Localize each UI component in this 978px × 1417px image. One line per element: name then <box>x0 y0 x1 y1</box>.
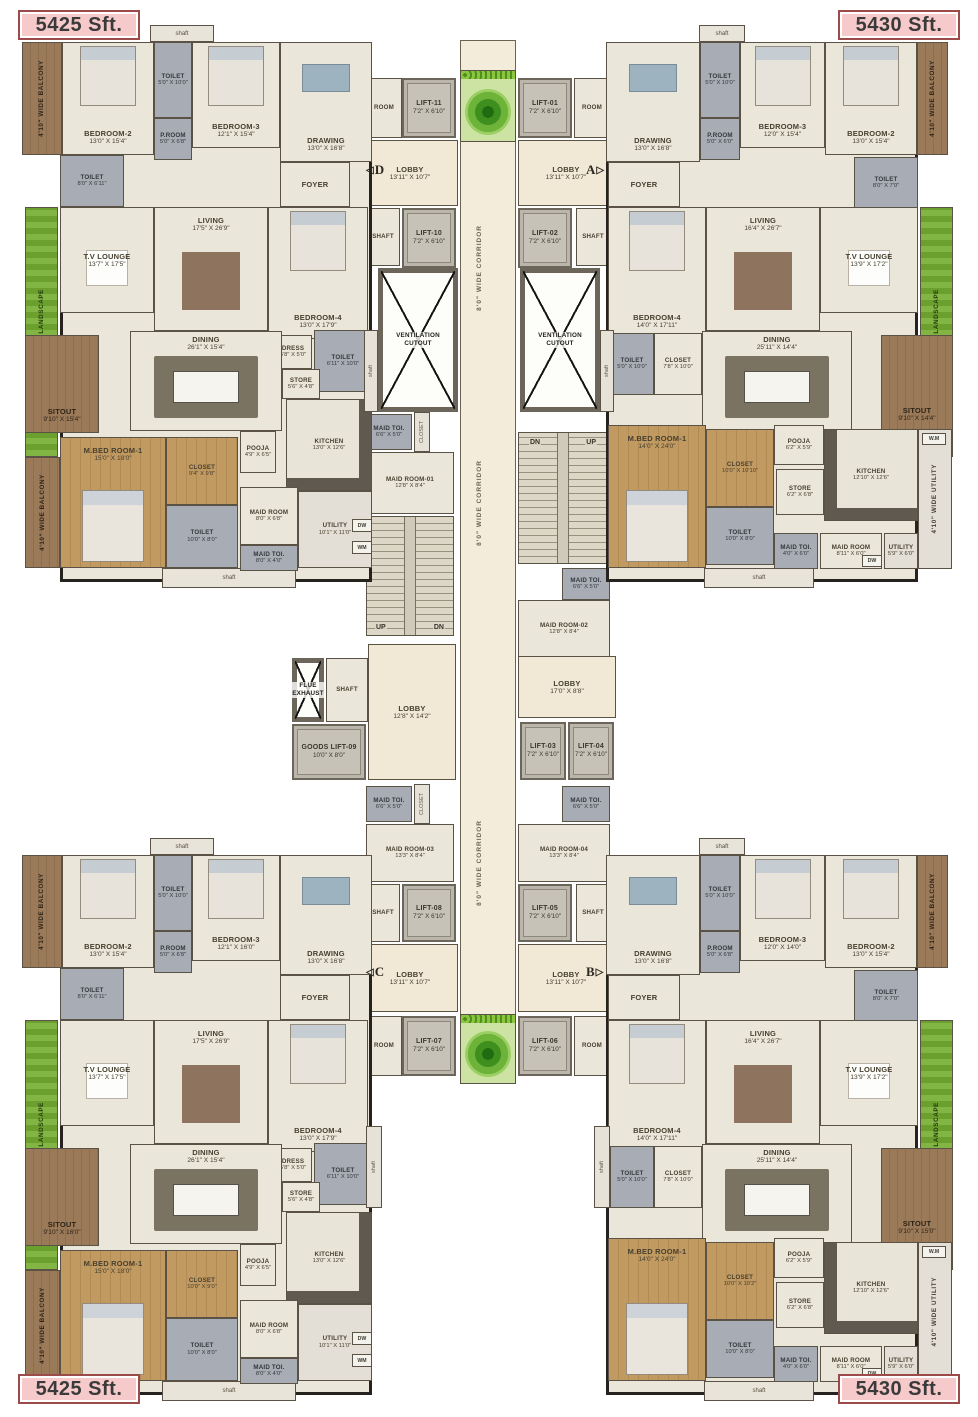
room-name: KITCHEN <box>315 438 344 445</box>
room-dim: 8'0" X 7'0" <box>873 183 899 190</box>
room-maid-toilet: MAID TOI.4'0" X 6'0" <box>774 533 818 569</box>
room-maid-toilet: MAID TOI.4'0" X 6'0" <box>774 1346 818 1382</box>
room-dim: 13'0" X 15'4" <box>89 138 126 146</box>
shaft-bottom: shaft <box>704 1381 814 1401</box>
lift-name: LIFT-02 <box>532 230 558 238</box>
shaft-label: shaft <box>604 365 610 377</box>
room-dim: 6'2" X 5'9" <box>786 445 812 452</box>
lift-06: LIFT-067'2" X 6'10" <box>518 1016 572 1076</box>
room-pooja: POOJA4'9" X 6'5" <box>240 1244 276 1286</box>
room-dim: 8'0" X 6'8" <box>256 516 282 523</box>
room-dim: 13'0" X 15'4" <box>89 951 126 959</box>
room-dim: 8'0" X 6'11" <box>77 181 106 188</box>
room-dim: 9'10" X 14'4" <box>898 415 935 423</box>
room-kitchen: KITCHEN13'0" X 12'6" <box>286 1212 372 1304</box>
room-name: SHAFT <box>582 909 604 916</box>
room-dim: 9'4" X 9'8" <box>189 471 215 478</box>
lift-dim: 7'2" X 6'10" <box>413 108 445 116</box>
room-store: STORE6'2" X 6'8" <box>776 469 824 515</box>
room-name: 4'10" WIDE BALCONY <box>929 60 937 137</box>
room-name: BEDROOM-2 <box>847 942 895 951</box>
room-dim: 4'0" X 6'0" <box>783 551 809 558</box>
shaft-label: shaft <box>715 844 728 850</box>
room-dim: 12'1" X 16'0" <box>217 944 254 952</box>
room-dim: 8'0" X 4'0" <box>256 558 282 565</box>
marker-letter: C <box>375 964 384 980</box>
corridor-label: 8'0" WIDE CORRIDOR <box>476 820 483 906</box>
room-master-bedroom: M.BED ROOM-114'0" X 24'0" <box>608 425 706 568</box>
room-bedroom4: BEDROOM-413'0" X 17'9" <box>268 207 368 339</box>
room-name: MAID TOI. <box>780 1357 811 1364</box>
room-name: TOILET <box>331 1167 354 1174</box>
room-proom: P.ROOM5'0" X 6'8" <box>700 931 740 973</box>
room-lift-lobby: ROOM <box>574 1016 610 1076</box>
room-name: MAID ROOM <box>832 544 871 551</box>
central-corridor <box>460 40 516 1084</box>
chip-label: WM <box>357 545 366 551</box>
room-dim: 8'0" X 6'8" <box>256 1329 282 1336</box>
room-dim: 12'0" X 15'4" <box>764 131 801 139</box>
floor-plan: 5425 Sft. 5430 Sft. 5425 Sft. 5430 Sft. … <box>0 0 978 1417</box>
room-dim: 12'10" X 12'6" <box>853 1288 889 1295</box>
room-dim: 12'8" X 8'4" <box>549 629 579 636</box>
shaft-bottom: shaft <box>162 568 296 588</box>
room-name: TOILET <box>874 176 897 183</box>
room-dim: 13'0" X 12'6" <box>313 445 346 452</box>
shaft-label: shaft <box>599 1161 605 1173</box>
room-name: MAID ROOM-01 <box>386 476 434 483</box>
room-dim: 15'0" X 18'0" <box>94 1268 131 1276</box>
room-name: LIVING <box>198 216 224 225</box>
room-name: BEDROOM-3 <box>212 935 260 944</box>
room-name: TOILET <box>190 1342 213 1349</box>
room-name: SITOUT <box>903 1219 932 1228</box>
room-dim: 5'0" X 10'0" <box>617 364 647 371</box>
lift-name: LIFT-11 <box>416 100 442 108</box>
room-name: T.V LOUNGE <box>83 1065 130 1074</box>
room-name: 4'10" WIDE UTILITY <box>931 464 939 534</box>
room-name: MAID ROOM-03 <box>386 846 434 853</box>
room-living: LIVING17'5" X 26'9" <box>154 1020 268 1144</box>
room-name: DINING <box>763 1148 790 1157</box>
room-toilet: TOILET8'0" X 6'11" <box>60 968 124 1020</box>
room-balcony-side: 4'10" WIDE BALCONY <box>25 457 60 568</box>
room-name: LIVING <box>750 216 776 225</box>
area-label-top-right: 5430 Sft. <box>838 10 960 40</box>
room-dim: 9'10" X 15'0" <box>898 1228 935 1236</box>
room-drawing: DRAWING13'0" X 16'8" <box>606 855 700 975</box>
room-dim: 13'0" X 12'6" <box>313 1258 346 1265</box>
room-name: LOBBY <box>398 704 425 713</box>
room-maid-toilet: MAID TOI.6'6" X 5'0" <box>562 786 610 822</box>
chip-label: W.M <box>929 1249 939 1255</box>
dishwasher-chip: DW <box>352 1332 372 1345</box>
room-name: UTILITY <box>323 1335 348 1342</box>
room-toilet: TOILET5'0" X 10'0" <box>700 42 740 118</box>
room-master-bedroom: M.BED ROOM-115'0" X 18'0" <box>60 1250 166 1381</box>
room-dim: 5'0" X 10'0" <box>617 1177 647 1184</box>
room-name: TOILET <box>728 529 751 536</box>
room-dim: 25'11" X 14'4" <box>757 344 797 352</box>
room-balcony: 4'10" WIDE BALCONY <box>917 855 948 968</box>
room-name: FOYER <box>631 180 658 189</box>
lift-name: LIFT-03 <box>530 743 556 751</box>
room-dim: 5'8" X 5'0" <box>280 352 306 359</box>
washing-machine-chip: WM <box>352 1354 372 1367</box>
room-maid-room-02: MAID ROOM-0212'8" X 8'4" <box>518 600 610 658</box>
dishwasher-chip: DW <box>862 555 882 567</box>
room-dim: 5'6" X 4'8" <box>288 1197 314 1204</box>
room-name: DINING <box>192 1148 219 1157</box>
room-name: BEDROOM-3 <box>759 935 807 944</box>
planter-bottom-icon <box>460 1014 516 1084</box>
room-toilet: TOILET8'0" X 7'0" <box>854 970 918 1022</box>
room-foyer: FOYER <box>608 975 680 1020</box>
room-name: MAID ROOM-02 <box>540 622 588 629</box>
room-name: CLOSET <box>665 357 691 364</box>
room-name: BEDROOM-2 <box>84 942 132 951</box>
room-name: CLOSET <box>665 1170 691 1177</box>
room-dining: DINING26'1" X 15'4" <box>130 331 282 431</box>
room-dim: 5'6" X 4'8" <box>288 384 314 391</box>
room-dim: 6'6" X 5'0" <box>376 804 402 811</box>
room-kitchen: KITCHEN12'10" X 12'6" <box>824 429 918 521</box>
room-name: STORE <box>290 1190 312 1197</box>
room-dim: 14'0" X 17'11" <box>637 1135 677 1143</box>
room-sitout: SITOUT9'10" X 16'0" <box>25 1148 99 1246</box>
room-name: TOILET <box>80 987 103 994</box>
room-kitchen: KITCHEN12'10" X 12'6" <box>824 1242 918 1334</box>
room-name: BEDROOM-4 <box>294 1126 342 1135</box>
closet-label: CLOSET <box>419 421 425 443</box>
room-dim: 26'1" X 15'4" <box>187 1157 224 1165</box>
room-dim: 8'0" X 7'0" <box>873 996 899 1003</box>
room-proom: P.ROOM5'0" X 6'8" <box>154 118 192 160</box>
room-name: CLOSET <box>727 1274 753 1281</box>
room-dim: 13'0" X 17'9" <box>299 322 336 330</box>
room-name: T.V LOUNGE <box>83 252 130 261</box>
room-closet: CLOSET10'0" X 9'0" <box>166 1250 238 1318</box>
room-name: MAID ROOM <box>250 509 289 516</box>
room-name: DRESS <box>282 1158 304 1165</box>
room-sitout: SITOUT9'10" X 14'4" <box>881 335 953 432</box>
room-name: DRAWING <box>634 136 672 145</box>
room-dim: 17'5" X 26'9" <box>192 1038 229 1046</box>
room-name: 4'10" WIDE BALCONY <box>39 1287 47 1364</box>
room-name: BEDROOM-2 <box>847 129 895 138</box>
room-dim: 14'0" X 24'0" <box>638 1256 675 1264</box>
room-name: 4'10" WIDE BALCONY <box>39 474 47 551</box>
room-bedroom3: BEDROOM-312'1" X 16'0" <box>192 855 280 961</box>
room-name: DINING <box>763 335 790 344</box>
room-name: BEDROOM-4 <box>633 313 681 322</box>
room-balcony-side: 4'10" WIDE BALCONY <box>25 1270 60 1381</box>
room-name: M.BED ROOM-1 <box>84 446 143 455</box>
room-name: ROOM <box>582 1042 602 1049</box>
room-name: POOJA <box>247 1258 270 1265</box>
room-name: BEDROOM-2 <box>84 129 132 138</box>
lift-dim: 7'2" X 6'10" <box>413 913 445 921</box>
room-pooja: POOJA4'9" X 6'5" <box>240 431 276 473</box>
room-name: STORE <box>789 1298 811 1305</box>
room-name: SHAFT <box>336 686 358 693</box>
room-foyer: FOYER <box>280 162 350 207</box>
room-bedroom3: BEDROOM-312'0" X 14'0" <box>740 855 825 961</box>
room-sitout: SITOUT9'10" X 15'0" <box>881 1148 953 1245</box>
room-toilet: TOILET8'0" X 6'11" <box>60 155 124 207</box>
room-name: TOILET <box>161 73 184 80</box>
room-dim: 6'2" X 6'8" <box>787 492 813 499</box>
room-dim: 6'2" X 5'9" <box>786 1258 812 1265</box>
room-bedroom4: BEDROOM-413'0" X 17'9" <box>268 1020 368 1152</box>
room-toilet: TOILET10'0" X 8'0" <box>166 505 238 568</box>
dishwasher-chip: DW <box>352 519 372 532</box>
room-bedroom2: BEDROOM-213'0" X 15'4" <box>62 42 154 155</box>
room-name: LIVING <box>198 1029 224 1038</box>
ventilation-cutout: VENTILATION CUTOUT <box>378 268 458 412</box>
room-utility-balcony: 4'10" WIDE UTILITY <box>918 1242 952 1382</box>
shaft-label: shaft <box>368 365 374 377</box>
room-tv-lounge: T.V LOUNGE13'9" X 17'2" <box>820 1020 918 1126</box>
room-dim: 12'0" X 14'0" <box>764 944 801 952</box>
area-label-bottom-left: 5425 Sft. <box>18 1374 140 1404</box>
stairs-dn-label: DN <box>529 439 541 446</box>
room-name: P.ROOM <box>160 132 186 139</box>
room-toilet: TOILET5'0" X 10'0" <box>610 333 654 395</box>
room-store: STORE5'6" X 4'8" <box>282 1182 320 1212</box>
chip-label: DW <box>358 1336 367 1342</box>
unit-br: shaft DRAWING13'0" X 16'8" TOILET5'0" X … <box>606 838 972 1403</box>
room-dim: 13'11" X 10'7" <box>546 979 586 987</box>
room-dim: 5'0" X 10'0" <box>158 893 188 900</box>
room-kitchen: KITCHEN13'0" X 12'6" <box>286 399 372 491</box>
room-name: FLUE EXHAUST <box>291 682 324 697</box>
lift-dim: 7'2" X 6'10" <box>529 238 561 246</box>
key-plan-marker-c: C <box>366 964 384 980</box>
shaft-strip: shaft <box>366 1126 382 1208</box>
room-dining: DINING26'1" X 15'4" <box>130 1144 282 1244</box>
lift-11: LIFT-117'2" X 6'10" <box>402 78 456 138</box>
room-sitout: SITOUT9'10" X 15'4" <box>25 335 99 433</box>
room-toilet: TOILET10'0" X 8'0" <box>166 1318 238 1381</box>
key-plan-marker-d: D <box>366 162 384 178</box>
room-name: KITCHEN <box>857 468 886 475</box>
room-toilet: TOILET5'0" X 10'0" <box>700 855 740 931</box>
room-name: UTILITY <box>889 1357 914 1364</box>
chip-label: W.M <box>929 436 939 442</box>
room-name: TOILET <box>331 354 354 361</box>
closet-strip: CLOSET <box>414 784 430 824</box>
lift-dim: 10'0" X 8'0" <box>313 752 345 760</box>
room-dim: 14'0" X 17'11" <box>637 322 677 330</box>
room-dim: 10'1" X 11'0" <box>319 1343 351 1350</box>
room-dim: 10'0" X 10'10" <box>722 468 758 475</box>
lift-name: LIFT-06 <box>532 1038 558 1046</box>
room-dim: 4'9" X 6'5" <box>245 1265 271 1272</box>
room-name: TOILET <box>620 357 643 364</box>
room-name: MAID TOI. <box>253 551 284 558</box>
room-dim: 10'0" X 8'0" <box>187 1350 217 1357</box>
room-name: DRESS <box>282 345 304 352</box>
area-label-bottom-right: 5430 Sft. <box>838 1374 960 1404</box>
room-closet-master: CLOSET10'0" X 10'10" <box>706 429 774 507</box>
room-dim: 5'0" X 6'8" <box>160 139 186 146</box>
room-dining: DINING25'11" X 14'4" <box>702 1144 852 1244</box>
ventilation-cutout: VENTILATION CUTOUT <box>520 268 600 412</box>
lift-dim: 7'2" X 6'10" <box>413 238 445 246</box>
room-name: FOYER <box>631 993 658 1002</box>
room-bedroom2: BEDROOM-213'0" X 15'4" <box>825 855 917 968</box>
room-name: LOBBY <box>396 165 423 174</box>
room-drawing: DRAWING13'0" X 16'8" <box>280 855 372 975</box>
room-name: DINING <box>192 335 219 344</box>
room-dim: 13'0" X 15'4" <box>852 138 889 146</box>
room-dim: 13'3" X 8'4" <box>395 853 425 860</box>
room-bedroom2: BEDROOM-213'0" X 15'4" <box>62 855 154 968</box>
key-plan-marker-b: B <box>586 964 603 980</box>
room-name: P.ROOM <box>707 132 733 139</box>
corridor-label: 8'0" WIDE CORRIDOR <box>476 225 483 311</box>
room-dim: 6'11" X 10'0" <box>327 361 359 368</box>
room-name: T.V LOUNGE <box>845 252 892 261</box>
room-name: 4'10" WIDE BALCONY <box>38 873 46 950</box>
shaft-strip: shaft <box>600 330 614 412</box>
marker-letter: B <box>586 964 595 980</box>
room-dim: 13'0" X 17'9" <box>299 1135 336 1143</box>
room-name: POOJA <box>788 438 811 445</box>
room-balcony: 4'10" WIDE BALCONY <box>22 42 62 155</box>
room-dim: 17'0" X 8'8" <box>550 688 584 696</box>
room-name: LIVING <box>750 1029 776 1038</box>
room-name: MAID ROOM-04 <box>540 846 588 853</box>
room-name: BEDROOM-4 <box>294 313 342 322</box>
room-name: VENTILATION CUTOUT <box>383 332 453 347</box>
room-toilet: TOILET10'0" X 8'0" <box>706 1320 774 1378</box>
room-dim: 14'0" X 24'0" <box>638 443 675 451</box>
lift-10: LIFT-107'2" X 6'10" <box>402 208 456 268</box>
room-dim: 13'0" X 15'4" <box>852 951 889 959</box>
room-living: LIVING16'4" X 26'7" <box>706 1020 820 1144</box>
room-tv-lounge: T.V LOUNGE13'7" X 17'5" <box>60 207 154 313</box>
room-dim: 26'1" X 15'4" <box>187 344 224 352</box>
shaft-top: shaft <box>150 25 214 42</box>
room-toilet: TOILET5'0" X 10'0" <box>154 42 192 118</box>
room-dim: 5'9" X 6'0" <box>888 551 914 558</box>
room-name: TOILET <box>80 174 103 181</box>
room-maid-toilet: MAID TOI.8'0" X 4'0" <box>240 1358 298 1384</box>
room-name: 4'10" WIDE BALCONY <box>929 873 937 950</box>
shaft-top: shaft <box>699 25 745 42</box>
room-name: SITOUT <box>903 406 932 415</box>
room-drawing: DRAWING13'0" X 16'8" <box>280 42 372 162</box>
chip-label: WM <box>357 1358 366 1364</box>
room-pooja: POOJA6'2" X 5'9" <box>774 1238 824 1278</box>
room-name: MAID TOI. <box>373 797 404 804</box>
goods-lift-09: GOODS LIFT-0910'0" X 8'0" <box>292 724 366 780</box>
closet-strip: CLOSET <box>414 412 430 452</box>
room-dim: 13'11" X 10'7" <box>546 174 586 182</box>
area-label-top-left: 5425 Sft. <box>18 10 140 40</box>
room-dining: DINING25'11" X 14'4" <box>702 331 852 431</box>
room-name: P.ROOM <box>707 945 733 952</box>
room-closet: CLOSET7'8" X 10'0" <box>654 333 702 395</box>
room-name: DRAWING <box>307 949 345 958</box>
room-bedroom2: BEDROOM-213'0" X 15'4" <box>825 42 917 155</box>
stairs-up-label: UP <box>585 439 597 446</box>
shaft-bottom: shaft <box>704 568 814 588</box>
room-name: TOILET <box>708 73 731 80</box>
room-dim: 7'8" X 10'0" <box>663 1177 693 1184</box>
room-name: STORE <box>290 377 312 384</box>
lift-name: GOODS LIFT-09 <box>301 744 356 752</box>
room-name: FOYER <box>302 993 329 1002</box>
room-utility-balcony: 4'10" WIDE UTILITY <box>918 429 952 569</box>
planter-top-icon <box>460 70 516 142</box>
room-name: LOBBY <box>553 679 580 688</box>
washing-machine-chip: W.M <box>922 433 946 445</box>
chip-label: DW <box>358 523 367 529</box>
room-dim: 17'5" X 26'9" <box>192 225 229 233</box>
lobby-right: LOBBY17'0" X 8'8" <box>518 656 616 718</box>
room-dim: 6'6" X 5'0" <box>573 804 599 811</box>
shaft-bottom: shaft <box>162 1381 296 1401</box>
room-dim: 13'0" X 16'8" <box>307 958 344 966</box>
lift-02: LIFT-027'2" X 6'10" <box>518 208 572 268</box>
room-toilet: TOILET5'0" X 10'0" <box>154 855 192 931</box>
room-name: LOBBY <box>396 970 423 979</box>
room-name: TOILET <box>708 886 731 893</box>
room-dim: 13'0" X 16'8" <box>634 145 671 153</box>
lift-dim: 7'2" X 6'10" <box>575 751 607 759</box>
room-name: MAID ROOM <box>250 1322 289 1329</box>
room-tv-lounge: T.V LOUNGE13'9" X 17'2" <box>820 207 918 313</box>
shaft-label: shaft <box>222 1388 235 1394</box>
shaft-top: shaft <box>699 838 745 855</box>
room-proom: P.ROOM5'0" X 6'0" <box>700 118 740 160</box>
room-name: MAID TOI. <box>570 577 601 584</box>
room-name: SITOUT <box>48 407 77 416</box>
lift-name: LIFT-07 <box>416 1038 442 1046</box>
lift-dim: 7'2" X 6'10" <box>529 913 561 921</box>
room-balcony: 4'10" WIDE BALCONY <box>917 42 948 155</box>
room-name: TOILET <box>874 989 897 996</box>
room-dim: 4'9" X 6'5" <box>245 452 271 459</box>
room-dim: 9'10" X 15'4" <box>43 416 80 424</box>
lift-07: LIFT-077'2" X 6'10" <box>402 1016 456 1076</box>
room-name: KITCHEN <box>857 1281 886 1288</box>
room-name: CLOSET <box>189 464 215 471</box>
lift-04: LIFT-047'2" X 6'10" <box>568 722 614 780</box>
room-name: MAID TOI. <box>253 1364 284 1371</box>
room-name: TOILET <box>620 1170 643 1177</box>
room-name: VENTILATION CUTOUT <box>525 332 595 347</box>
room-name: BEDROOM-3 <box>212 122 260 131</box>
room-dim: 13'7" X 17'5" <box>88 1074 125 1082</box>
room-name: TOILET <box>728 1342 751 1349</box>
room-dim: 5'0" X 6'0" <box>707 139 733 146</box>
lift-name: LIFT-05 <box>532 905 558 913</box>
room-dim: 5'0" X 6'8" <box>160 952 186 959</box>
staircase-upper: DN UP <box>518 432 608 564</box>
room-name: DRAWING <box>307 136 345 145</box>
shaft-label: shaft <box>752 1388 765 1394</box>
room-closet: CLOSET7'8" X 10'0" <box>654 1146 702 1208</box>
room-dim: 12'8" X 8'4" <box>395 483 425 490</box>
marker-letter: A <box>586 162 595 178</box>
room-name: T.V LOUNGE <box>845 1065 892 1074</box>
room-dim: 12'8" X 14'2" <box>393 713 430 721</box>
flue-exhaust: FLUE EXHAUST <box>292 658 324 722</box>
